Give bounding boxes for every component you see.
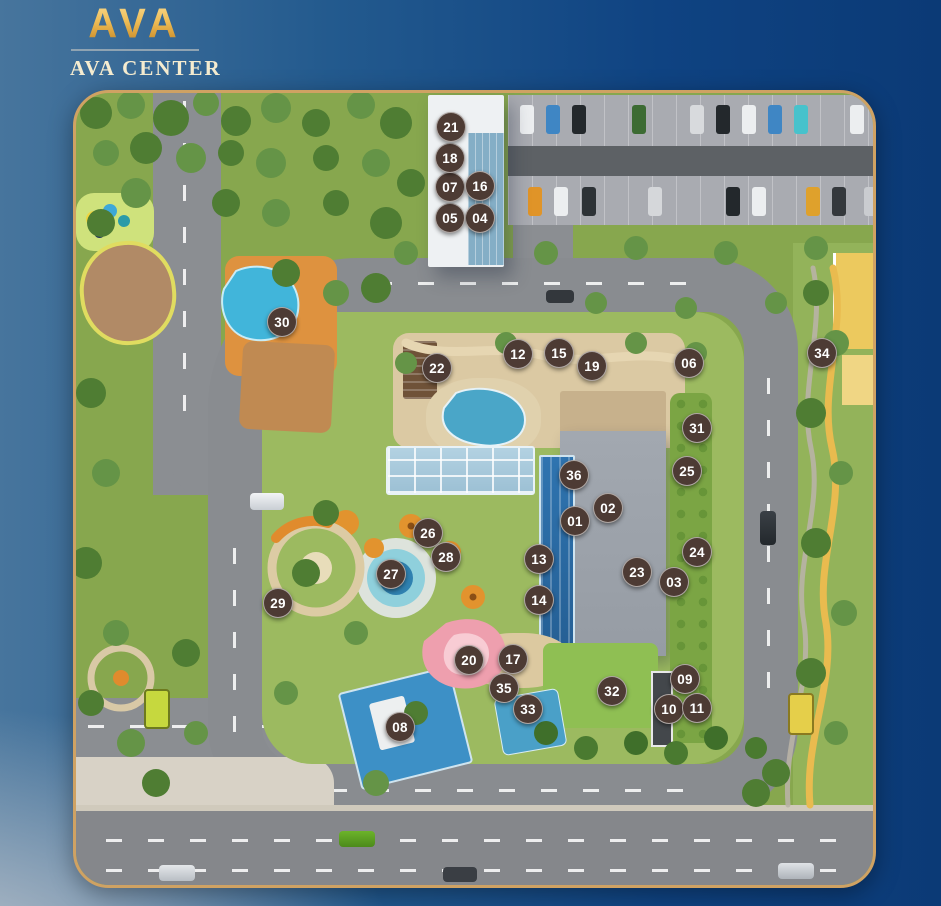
map-marker-16[interactable]: 16 xyxy=(465,171,495,201)
map-marker-20[interactable]: 20 xyxy=(454,645,484,675)
map-marker-04[interactable]: 04 xyxy=(465,203,495,233)
map-marker-07[interactable]: 07 xyxy=(435,172,465,202)
car-boulevard-3 xyxy=(443,867,477,882)
map-marker-24[interactable]: 24 xyxy=(682,537,712,567)
map-marker-21[interactable]: 21 xyxy=(436,112,466,142)
shuttle-bus-west xyxy=(144,689,170,729)
map-marker-09[interactable]: 09 xyxy=(670,664,700,694)
map-marker-17[interactable]: 17 xyxy=(498,644,528,674)
car-boulevard-1 xyxy=(159,865,195,881)
map-marker-22[interactable]: 22 xyxy=(422,353,452,383)
map-marker-25[interactable]: 25 xyxy=(672,456,702,486)
map-marker-28[interactable]: 28 xyxy=(431,542,461,572)
map-marker-15[interactable]: 15 xyxy=(544,338,574,368)
car-boulevard-4 xyxy=(778,863,814,879)
ava-logo-icon: AVA xyxy=(70,1,200,47)
page: AVA AVA CENTER xyxy=(0,0,941,906)
map-marker-36[interactable]: 36 xyxy=(559,460,589,490)
map-marker-19[interactable]: 19 xyxy=(577,351,607,381)
map-marker-33[interactable]: 33 xyxy=(513,694,543,724)
map-marker-03[interactable]: 03 xyxy=(659,567,689,597)
map-marker-32[interactable]: 32 xyxy=(597,676,627,706)
car-north-loop xyxy=(546,290,574,303)
umbrella-icon xyxy=(364,538,384,558)
map-marker-02[interactable]: 02 xyxy=(593,493,623,523)
brand-name: AVA CENTER xyxy=(70,56,290,81)
map-marker-12[interactable]: 12 xyxy=(503,339,533,369)
umbrella-pole xyxy=(470,594,477,601)
shuttle-bus-east xyxy=(788,693,814,735)
map-marker-01[interactable]: 01 xyxy=(560,506,590,536)
map-marker-13[interactable]: 13 xyxy=(524,544,554,574)
map-marker-11[interactable]: 11 xyxy=(682,693,712,723)
map-marker-30[interactable]: 30 xyxy=(267,307,297,337)
southwest-garden-dot xyxy=(113,670,129,686)
map-marker-34[interactable]: 34 xyxy=(807,338,837,368)
map-marker-31[interactable]: 31 xyxy=(682,413,712,443)
logo-divider xyxy=(71,49,199,51)
map-marker-08[interactable]: 08 xyxy=(385,712,415,742)
map-marker-14[interactable]: 14 xyxy=(524,585,554,615)
brand-logo: AVA AVA CENTER xyxy=(70,2,290,81)
leisure-pool xyxy=(443,389,525,446)
map-marker-06[interactable]: 06 xyxy=(674,348,704,378)
map-marker-23[interactable]: 23 xyxy=(622,557,652,587)
map-marker-18[interactable]: 18 xyxy=(435,143,465,173)
car-boulevard-2 xyxy=(339,831,375,847)
map-marker-10[interactable]: 10 xyxy=(654,694,684,724)
map-marker-05[interactable]: 05 xyxy=(435,203,465,233)
west-playground-center xyxy=(300,552,332,584)
car-east-loop xyxy=(760,511,776,545)
map-marker-35[interactable]: 35 xyxy=(489,673,519,703)
map-marker-27[interactable]: 27 xyxy=(376,559,406,589)
map-marker-29[interactable]: 29 xyxy=(263,588,293,618)
car-west-connector xyxy=(250,493,284,510)
